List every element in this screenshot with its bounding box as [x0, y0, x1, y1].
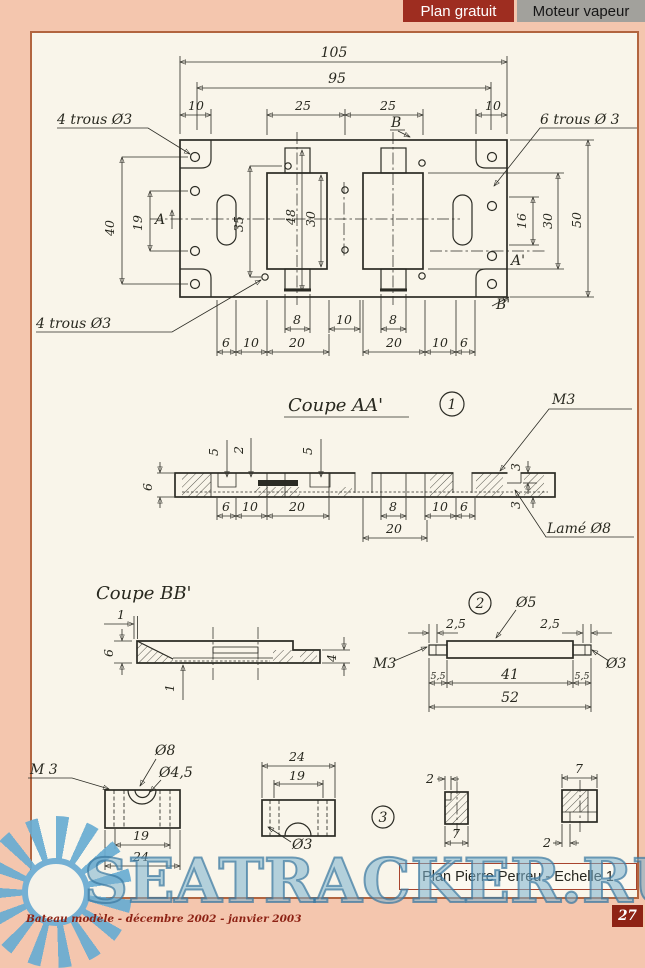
coupe-aa-title: Coupe AA' — [288, 395, 383, 416]
dim-10-right: 10 — [485, 98, 501, 113]
dim-6-bl: 6 — [222, 335, 230, 350]
label-6-trous: 6 trous Ø 3 — [540, 112, 620, 128]
detail-3-bubble: 3 — [379, 810, 388, 826]
detail-2-bubble: 2 — [475, 596, 485, 612]
dim-8-left: 8 — [293, 312, 301, 327]
dim-p2-55-left: 5,5 — [430, 671, 445, 682]
section-a-label: A — [153, 212, 165, 228]
dim-p2-55-right: 5,5 — [574, 671, 589, 682]
dim-aab-8: 8 — [389, 499, 397, 514]
dim-30-right: 30 — [540, 213, 555, 229]
dim-10-mid: 10 — [336, 312, 352, 327]
label-p2-m3: M3 — [372, 656, 396, 672]
dim-aa-5b: 5 — [300, 447, 315, 455]
dim-95: 95 — [328, 71, 346, 87]
coupe-aa-section: Coupe AA' 1 5 2 5 — [140, 392, 634, 542]
dim-19: 19 — [130, 215, 145, 231]
label-b1-m3: M 3 — [29, 762, 58, 778]
dim-aab-10b: 10 — [432, 499, 448, 514]
dim-8-right: 8 — [389, 312, 397, 327]
dim-b2-19: 19 — [289, 768, 305, 783]
dim-p2-52: 52 — [501, 690, 519, 706]
dim-20-bl: 20 — [288, 335, 305, 350]
dim-bb-1-top: 1 — [117, 607, 125, 622]
dim-bb-4: 4 — [324, 654, 339, 663]
dim-35: 35 — [231, 216, 246, 232]
dim-bb-1-bottom: 1 — [162, 684, 177, 692]
dim-16: 16 — [514, 213, 529, 229]
detail-1-bubble: 1 — [448, 397, 457, 413]
dim-25-a: 25 — [294, 98, 311, 113]
coupe-bb-section: Coupe BB' 1 6 4 1 — [96, 583, 350, 700]
dim-40: 40 — [102, 220, 117, 237]
dim-p2-25-right: 2,5 — [539, 616, 560, 631]
section-b-label: B — [390, 115, 401, 131]
dim-sl-2: 2 — [425, 771, 434, 786]
section-a-prime-label: A' — [509, 253, 525, 269]
dim-48: 48 — [283, 209, 298, 226]
dim-aab-10a: 10 — [242, 499, 258, 514]
watermark-text: SEATRACKER.RU — [84, 851, 645, 912]
section-b-prime-label: B' — [495, 297, 510, 313]
label-4-trous-bottom: 4 trous Ø3 — [35, 316, 111, 332]
label-lame-o8: Lamé Ø8 — [546, 521, 611, 537]
technical-drawing: 105 95 10 25 25 10 40 19 A 35 48 30 16 3… — [0, 0, 645, 944]
dim-aa-6: 6 — [140, 483, 155, 491]
dim-aa-2: 2 — [231, 446, 246, 455]
dim-aa-3-bottom: 3 — [508, 501, 523, 509]
dim-sr-7: 7 — [575, 761, 583, 776]
dim-aab-6b: 6 — [460, 499, 468, 514]
dim-10-br: 10 — [432, 335, 448, 350]
dim-25-b: 25 — [379, 98, 396, 113]
main-view: 105 95 10 25 25 10 40 19 A 35 48 30 16 3… — [35, 45, 637, 356]
dim-10-left: 10 — [188, 98, 204, 113]
dim-aab-20a: 20 — [288, 499, 305, 514]
dim-aab-20b: 20 — [385, 521, 402, 536]
dim-20-br: 20 — [385, 335, 402, 350]
label-p2-o3: Ø3 — [605, 656, 626, 672]
dim-bb-6: 6 — [101, 649, 116, 657]
page-number-badge: 27 — [612, 905, 643, 927]
coupe-bb-title: Coupe BB' — [96, 583, 192, 604]
dim-10-bl: 10 — [243, 335, 259, 350]
dim-105: 105 — [321, 45, 348, 61]
dim-sl-7: 7 — [452, 826, 460, 841]
label-4-trous-top: 4 trous Ø3 — [56, 112, 132, 128]
label-b1-o45: Ø4,5 — [158, 765, 193, 781]
label-aa-m3: M3 — [551, 392, 575, 408]
dim-b2-24: 24 — [288, 749, 305, 764]
dim-aab-6a: 6 — [222, 499, 230, 514]
part-2-shaft: 2 Ø5 M3 Ø3 2,5 2,5 5,5 41 5,5 52 — [372, 592, 626, 712]
dim-30-boss: 30 — [303, 211, 318, 227]
dim-b1-19: 19 — [133, 828, 149, 843]
dim-aa-5a: 5 — [206, 448, 221, 456]
label-b1-o8: Ø8 — [154, 743, 175, 759]
dim-50: 50 — [569, 212, 584, 228]
dim-p2-41: 41 — [500, 667, 519, 683]
label-p2-o5: Ø5 — [515, 595, 536, 611]
magazine-footer: Bateau modèle - décembre 2002 - janvier … — [26, 913, 302, 925]
dim-p2-25-left: 2,5 — [445, 616, 466, 631]
dim-aa-3-top: 3 — [508, 463, 523, 471]
dim-6-br: 6 — [460, 335, 468, 350]
